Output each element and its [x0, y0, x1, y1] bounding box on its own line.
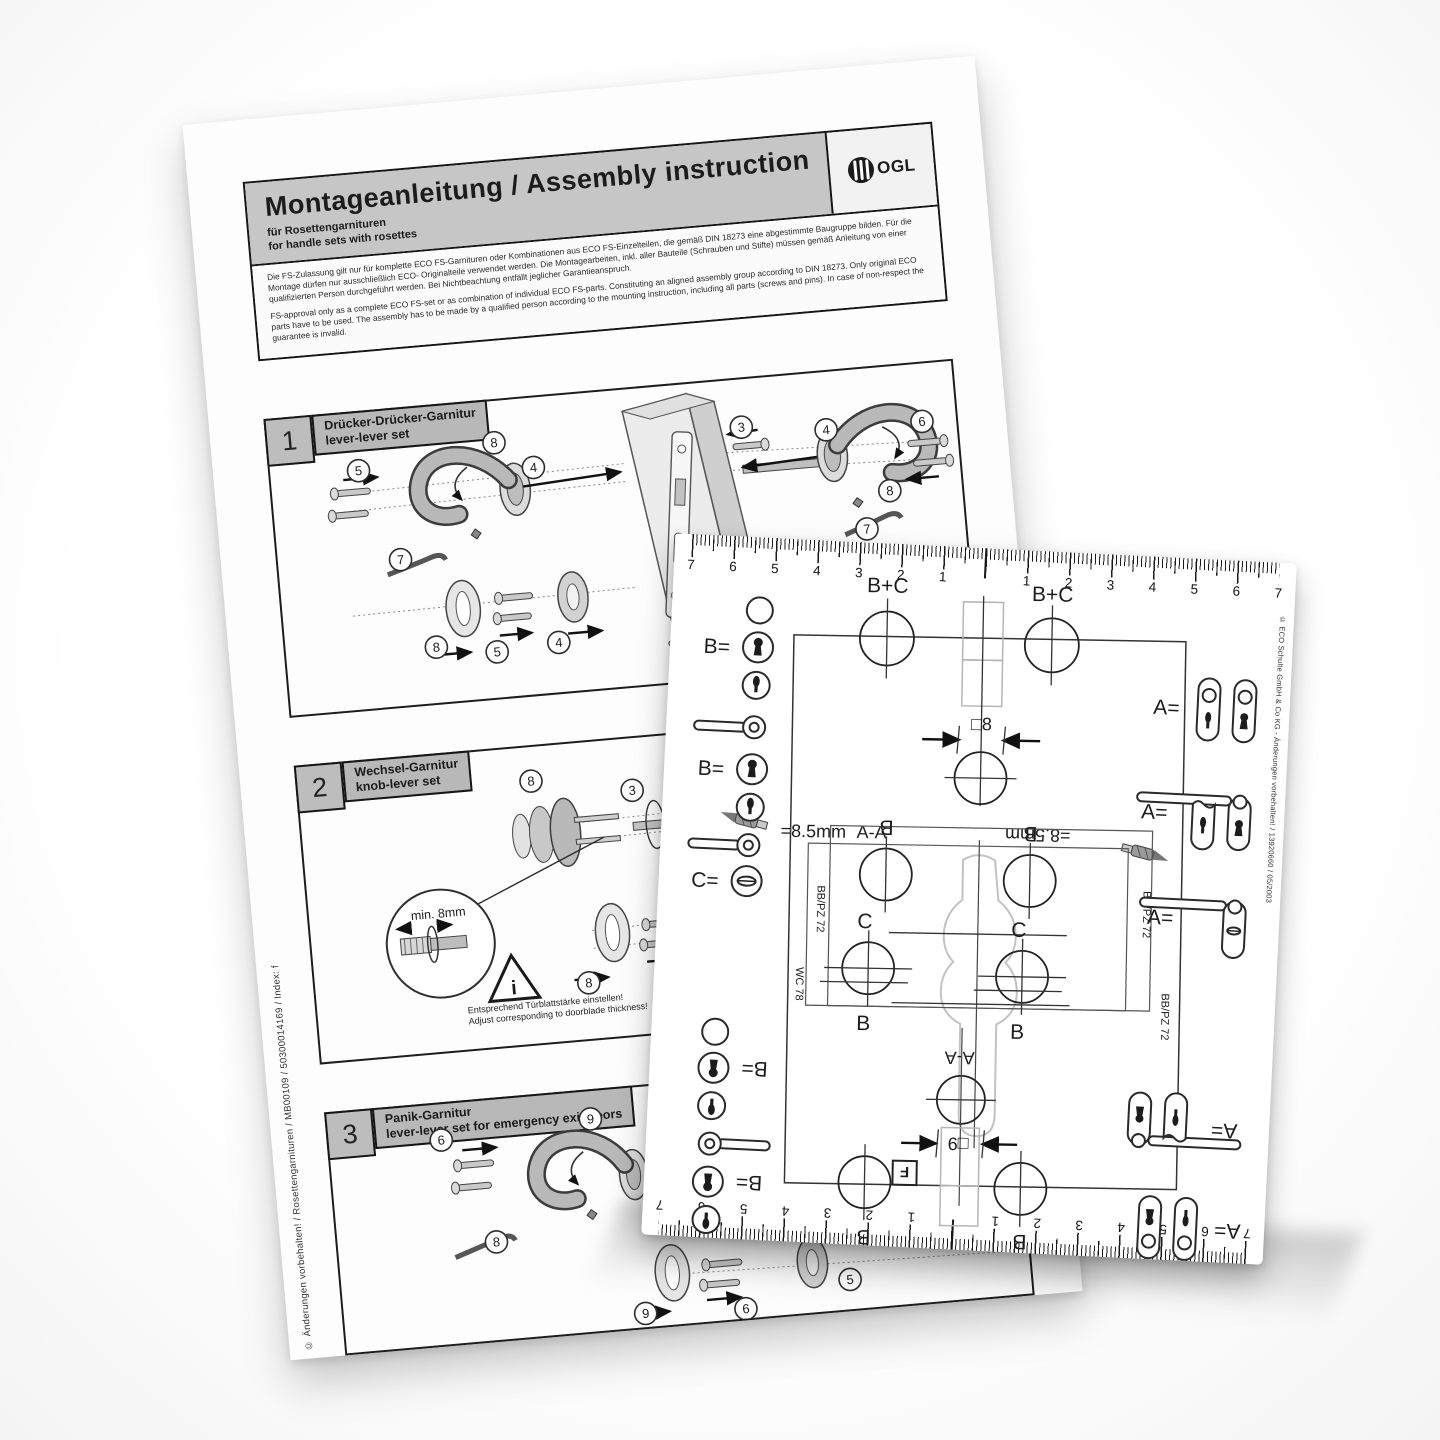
- callout: 8: [485, 1230, 509, 1254]
- svg-text:□8: □8: [971, 714, 992, 734]
- svg-text:B+C: B+C: [867, 574, 909, 598]
- callout: 9: [578, 1107, 602, 1131]
- wc-rosette-icon: C=: [691, 863, 763, 896]
- svg-text:F: F: [900, 1163, 909, 1180]
- svg-text:7: 7: [863, 521, 872, 537]
- svg-text:B: B: [856, 1012, 870, 1035]
- pz-rosette-icon: B=: [703, 630, 774, 663]
- section-aa-bottom: A-A: [924, 1027, 997, 1206]
- callout: 6: [429, 1128, 453, 1152]
- lever-wc-plate-icon: A=: [1138, 896, 1247, 959]
- callout: 3: [620, 778, 644, 802]
- logo-text: OGL: [876, 156, 916, 179]
- svg-text:4: 4: [529, 460, 538, 476]
- svg-text:8: 8: [432, 639, 441, 655]
- callout: 8: [482, 431, 506, 455]
- svg-text:C=: C=: [691, 868, 720, 892]
- square-9-dimension: □9 F: [892, 1127, 1018, 1227]
- drill-note: =8.5mm A-A =8.5mm: [718, 808, 1170, 865]
- hole-cb-lower-right: C B: [973, 918, 1067, 1045]
- allen-key: [452, 1209, 599, 1257]
- template-drawing: B+C B+C □8: [641, 533, 1297, 1265]
- svg-text:3: 3: [628, 783, 637, 799]
- svg-text:B: B: [1023, 822, 1037, 845]
- distance-boxes: BB/PZ 72 WC 78 BB/PZ 72 BB/PZ 72: [792, 825, 1174, 1041]
- logo-roundel-icon: [847, 156, 875, 184]
- hole-b-bottom-right: B: [993, 1150, 1047, 1253]
- screws-left: [448, 1147, 500, 1194]
- lever-icon: [698, 1132, 770, 1157]
- callout: 5: [347, 459, 371, 483]
- callout: 8: [424, 635, 448, 659]
- plate-pair-icon: A=: [1152, 676, 1257, 743]
- pz-rosette-icon: B=: [697, 752, 768, 785]
- callout: 3: [729, 415, 753, 439]
- svg-text:B=: B=: [697, 757, 724, 781]
- screws-bottom-left: [491, 589, 536, 636]
- svg-text:8: 8: [886, 483, 895, 499]
- hole-b-bottom-left: B: [837, 1144, 891, 1249]
- lever-handle-panik: [533, 1133, 649, 1208]
- svg-text:3: 3: [737, 419, 746, 435]
- svg-text:7: 7: [396, 552, 405, 568]
- svg-text:A=: A=: [1214, 1218, 1241, 1242]
- header-box: Montageanleitung / Assembly instruction …: [243, 122, 948, 361]
- screws-left: [325, 477, 381, 523]
- blank-rosette-icon: [746, 597, 773, 624]
- svg-text:C: C: [1011, 919, 1027, 942]
- callout: 4: [547, 631, 571, 655]
- svg-text:BB/PZ 72: BB/PZ 72: [1158, 993, 1171, 1040]
- svg-text:8: 8: [527, 773, 536, 789]
- svg-text:B=: B=: [735, 1170, 762, 1194]
- plate-pair-icon-flipped: A=: [1137, 1196, 1242, 1263]
- info-triangle: i: [486, 953, 540, 1001]
- knob: [510, 794, 623, 871]
- svg-text:B: B: [1010, 1021, 1024, 1044]
- svg-text:5: 5: [354, 463, 363, 479]
- svg-text:4: 4: [555, 635, 564, 651]
- svg-text:4: 4: [822, 422, 831, 438]
- blank-rosette-icon: [702, 1018, 729, 1045]
- svg-text:A=: A=: [1153, 696, 1180, 720]
- svg-text:=8.5mm: =8.5mm: [780, 821, 846, 842]
- svg-text:B=: B=: [703, 635, 730, 659]
- svg-text:B: B: [879, 815, 893, 838]
- hole-cb-lower-left: C B: [819, 909, 913, 1036]
- bb-rosette-icon: [742, 671, 770, 699]
- svg-text:A-A: A-A: [944, 1048, 974, 1069]
- lock-case-profile: [885, 839, 1072, 1150]
- drilling-template-card: 7 6 5 4 3 2 1 1 2 3 4 5 6 7 7 6 5 4 3 2 …: [641, 533, 1297, 1265]
- svg-text:B: B: [856, 1225, 870, 1248]
- bb-rosette-icon: [692, 1205, 720, 1233]
- logo-cell: OGL: [825, 124, 938, 213]
- bb-rosette-icon: [736, 793, 764, 821]
- lever-handle-left: [415, 449, 532, 524]
- lever-icon: [688, 831, 760, 856]
- pz-rosette-icon: B=: [692, 1166, 763, 1199]
- spindle-channel-top: [960, 596, 1004, 807]
- right-legend-column: A= A=: [1115, 675, 1268, 1262]
- svg-text:□9: □9: [948, 1134, 969, 1154]
- svg-text:8: 8: [490, 435, 499, 451]
- callout: 8: [577, 971, 601, 995]
- photo-backdrop: Montageanleitung / Assembly instruction …: [0, 0, 1440, 1440]
- svg-text:9: 9: [586, 1111, 595, 1127]
- callout: 4: [521, 456, 545, 480]
- svg-text:WC 78: WC 78: [793, 967, 806, 1001]
- svg-text:C: C: [857, 910, 873, 933]
- svg-text:8: 8: [585, 975, 594, 991]
- rosette-outer: [568, 902, 633, 980]
- callout: 4: [814, 418, 838, 442]
- svg-text:5: 5: [493, 644, 502, 660]
- svg-text:6: 6: [437, 1132, 446, 1148]
- svg-text:A=: A=: [1141, 800, 1168, 824]
- svg-text:6: 6: [918, 414, 927, 430]
- hole-bc-right: B+C: [1024, 583, 1080, 686]
- lever-icon: [694, 713, 766, 738]
- svg-text:8: 8: [492, 1234, 501, 1250]
- callout: 5: [485, 640, 509, 664]
- left-legend-column: B= B=: [669, 595, 796, 1236]
- rosette-inner-left: [556, 570, 602, 635]
- hole-bc-left: B+C: [859, 574, 915, 679]
- pz-rosette-icon: B=: [698, 1052, 769, 1085]
- svg-text:B: B: [1012, 1230, 1026, 1253]
- callout: 8: [878, 479, 902, 503]
- callout: 7: [855, 517, 879, 541]
- edge-imprint: © Änderungen vorbehalten! / Rosettengarn…: [270, 965, 315, 1352]
- callout: 7: [389, 548, 413, 572]
- lever-plate-pair-icon-flipped: A=: [1127, 1091, 1243, 1152]
- left-legend-column-flipped: B= B=: [690, 1018, 775, 1236]
- bb-rosette-icon: [697, 1092, 725, 1120]
- callout: 8: [519, 769, 543, 793]
- svg-text:B=: B=: [741, 1056, 768, 1080]
- svg-text:BB/PZ 72: BB/PZ 72: [814, 885, 827, 932]
- svg-text:B+C: B+C: [1032, 583, 1074, 607]
- callout: 6: [910, 409, 934, 433]
- fire-label: F: [892, 1161, 916, 1185]
- svg-text:A=: A=: [1146, 906, 1173, 930]
- brand-logo: OGL: [847, 153, 916, 185]
